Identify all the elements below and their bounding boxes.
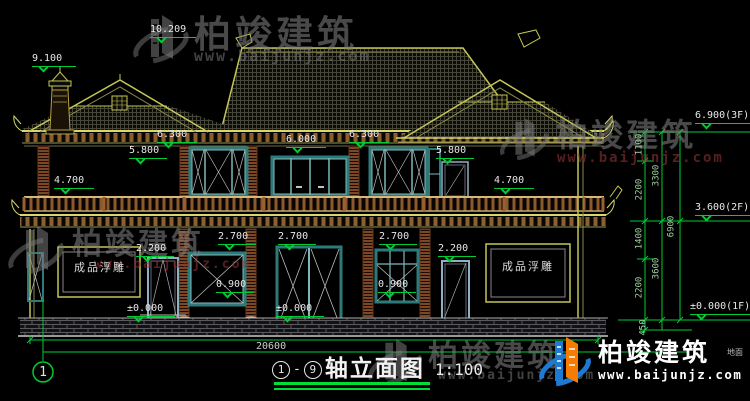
- elevation-marker: 4.700: [54, 175, 84, 193]
- elevation-marker: 0.900: [216, 279, 244, 297]
- floor-level-3f: 6.900(3F): [695, 110, 749, 128]
- elevation-marker: 6.300: [157, 129, 187, 147]
- relief-panel-label: 成品浮雕: [496, 261, 560, 273]
- elevation-marker-ridge: 10.209: [150, 24, 186, 42]
- elevation-marker: 2.200: [136, 243, 164, 261]
- title-underline: [274, 388, 430, 390]
- cad-elevation-canvas: 柏竣建筑 www.baijunjz.com 柏竣建筑 www.baijunjz.…: [0, 0, 750, 401]
- elevation-marker: 2.700: [379, 231, 407, 249]
- elevation-marker-chimney: 9.100: [32, 53, 66, 71]
- title-text: 轴立面图: [325, 358, 425, 381]
- floor-level-1f: ±0.000(1F): [690, 301, 748, 319]
- axis-end-bubble: 9: [304, 361, 322, 379]
- brand-logo-icon: [538, 333, 594, 399]
- elevation-marker: 5.800: [129, 145, 157, 163]
- drawing-title: 1 - 9 轴立面图 1:100: [272, 358, 483, 381]
- elevation-marker: 2.700: [218, 231, 246, 249]
- axis-bubble-number: 1: [36, 366, 50, 379]
- dim-2200: 2200: [636, 266, 645, 310]
- title-underline: [274, 382, 430, 385]
- elevation-marker: 2.700: [278, 231, 306, 249]
- dim-3600: 3600: [653, 247, 662, 291]
- brand-name: 柏竣建筑: [598, 339, 742, 367]
- elevation-marker: 5.800: [436, 145, 464, 163]
- relief-panel-label: 成品浮雕: [70, 262, 130, 274]
- elevation-marker-ground: ±0.000: [127, 303, 165, 321]
- total-width-dim: 20600: [256, 341, 286, 352]
- brand-logo: 柏竣建筑 www.baijunjz.com: [538, 333, 750, 397]
- elevation-marker: 2.200: [438, 243, 466, 261]
- dim-6900: 6900: [668, 205, 677, 249]
- elevation-marker: 6.300: [349, 129, 379, 147]
- title-scale: 1:100: [435, 362, 483, 378]
- axis-range-dash: -: [293, 363, 301, 376]
- elevation-marker: 6.000: [286, 134, 316, 152]
- dim-1100: 1100: [636, 123, 645, 167]
- floor-level-2f: 3.600(2F): [695, 202, 749, 220]
- elevation-marker-ground: ±0.000: [276, 303, 314, 321]
- dim-2200: 2200: [636, 168, 645, 212]
- dim-3300: 3300: [653, 154, 662, 198]
- elevation-marker: 0.900: [378, 279, 406, 297]
- brand-url: www.baijunjz.com: [598, 367, 742, 382]
- elevation-marker: 4.700: [494, 175, 524, 193]
- dim-1400: 1400: [636, 217, 645, 261]
- axis-start-bubble: 1: [272, 361, 290, 379]
